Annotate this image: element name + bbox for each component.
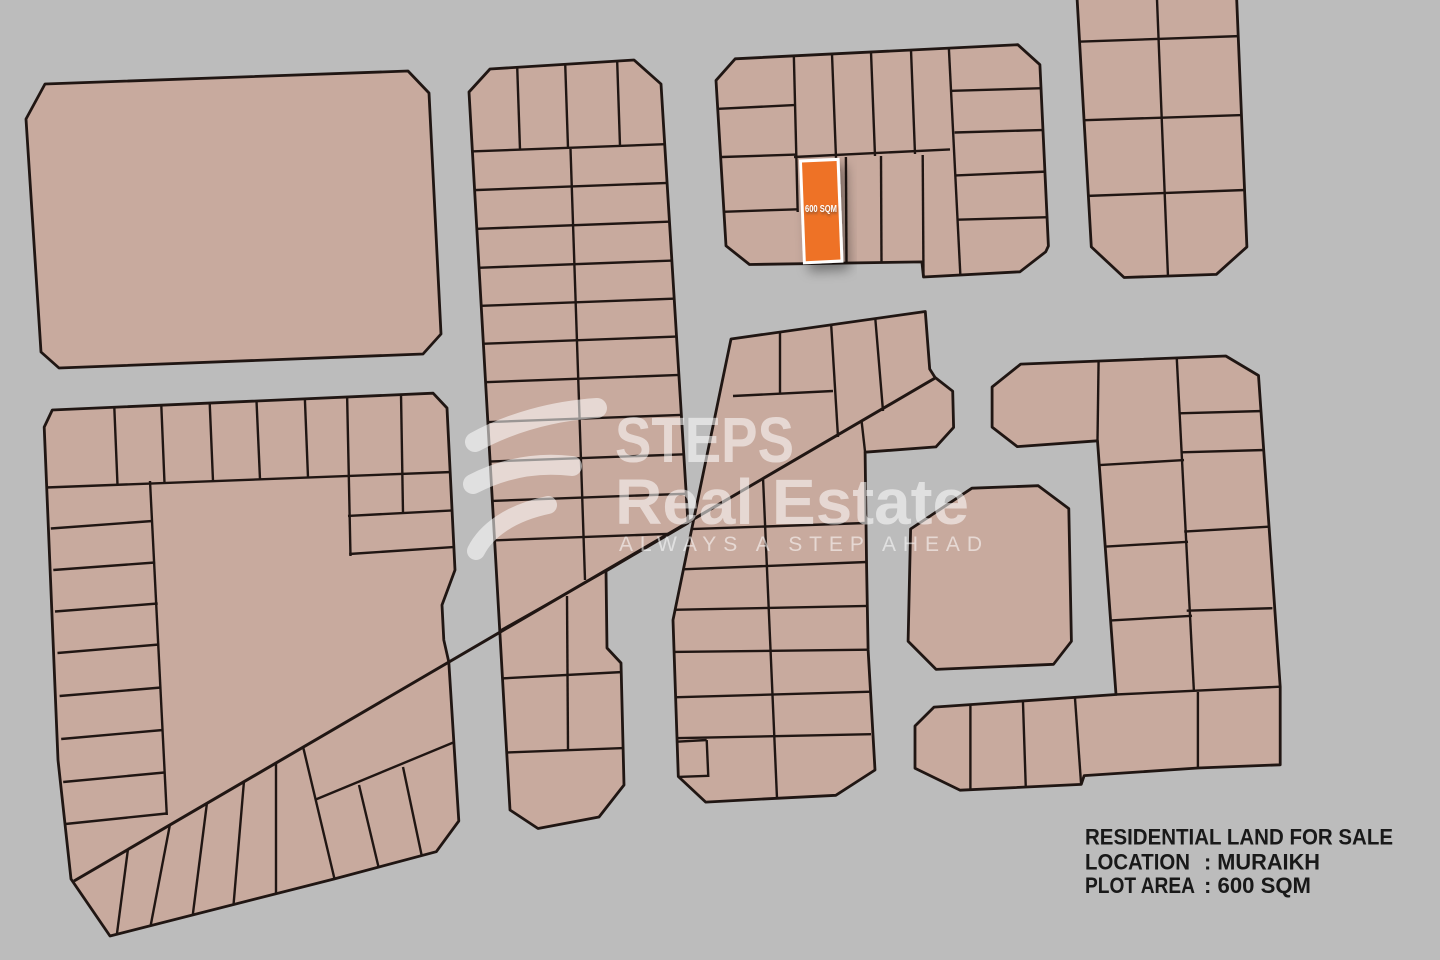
svg-text:600 SQM: 600 SQM — [805, 203, 837, 215]
svg-text:: MURAIKH: : MURAIKH — [1204, 849, 1320, 874]
svg-text:PLOT AREA: PLOT AREA — [1085, 873, 1195, 898]
svg-text:RESIDENTIAL LAND FOR SALE: RESIDENTIAL LAND FOR SALE — [1085, 824, 1393, 849]
svg-text:: 600 SQM: : 600 SQM — [1204, 873, 1311, 898]
svg-text:LOCATION: LOCATION — [1085, 849, 1190, 874]
svg-text:ALWAYS A STEP AHEAD: ALWAYS A STEP AHEAD — [619, 533, 982, 556]
svg-text:Real Estate: Real Estate — [615, 466, 969, 538]
